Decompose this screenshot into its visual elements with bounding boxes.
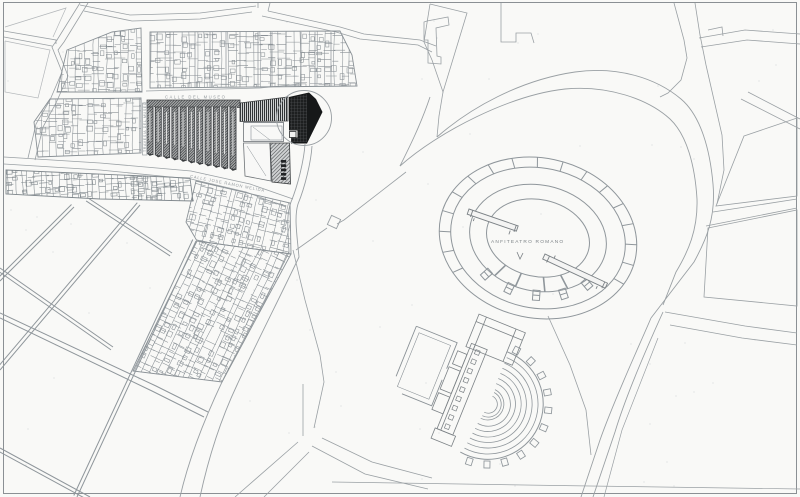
svg-text:TRAVESIA DEL MUSEO: TRAVESIA DEL MUSEO [143,102,147,152]
svg-text:CALLE DEL MUSEO: CALLE DEL MUSEO [165,95,226,100]
svg-text:ANFITEATRO ROMANO: ANFITEATRO ROMANO [491,239,564,245]
